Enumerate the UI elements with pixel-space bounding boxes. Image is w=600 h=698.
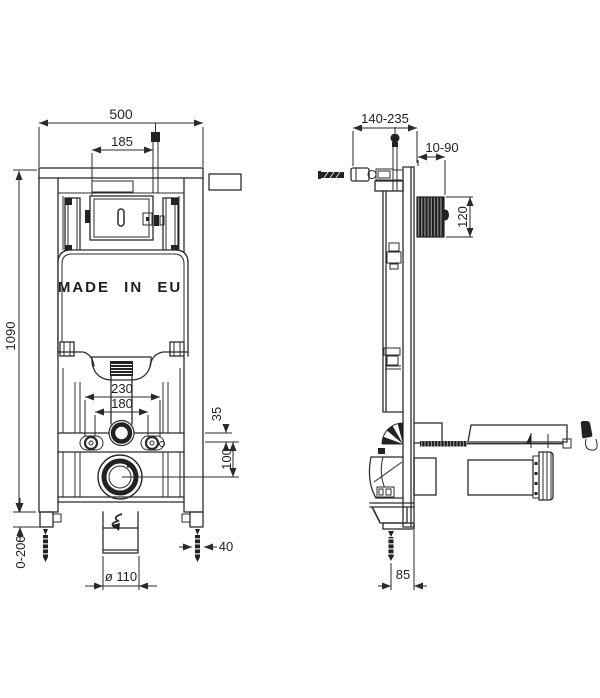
right-fixing-hole	[146, 437, 158, 449]
dim-flush-35-label: 35	[209, 407, 224, 421]
left-rail	[62, 198, 83, 253]
side-rail	[403, 167, 414, 527]
flush-bend-fan	[378, 423, 403, 454]
drain-pipe	[103, 512, 138, 553]
technical-drawing-page: MADE IN EU	[0, 0, 600, 698]
left-fixing-hole	[85, 437, 97, 449]
upper-bracket	[414, 423, 442, 443]
dim-height-1090-label: 1090	[3, 322, 18, 351]
dim-drain-dia-110: ø 110	[85, 556, 157, 590]
drain-elbow	[369, 457, 403, 498]
flush-pipe-outlet	[109, 421, 134, 446]
inspection-window-block	[417, 197, 449, 237]
frame-bottom	[40, 497, 203, 562]
right-clip	[154, 215, 159, 226]
dim-foot-40-label: 40	[219, 539, 233, 554]
front-view: MADE IN EU	[39, 123, 241, 562]
dim-outlet-85-label: 85	[396, 567, 410, 582]
supply-rod-cap	[151, 132, 160, 142]
right-leg-pin	[195, 529, 200, 562]
dim-foot-40: 40	[179, 539, 233, 554]
valve-bracket	[375, 181, 403, 191]
outlet-pipe	[468, 460, 533, 495]
mounting-plate	[468, 425, 567, 442]
side-view	[318, 127, 597, 561]
dim-fixing-230-label: 230	[111, 381, 133, 396]
dim-supply-185-label: 185	[111, 134, 133, 149]
flush-access-box	[85, 196, 164, 240]
dim-depth-140-235: 140-235	[353, 111, 417, 166]
cistern-frame-drawing: MADE IN EU	[0, 0, 600, 698]
fastener-bracket	[581, 421, 597, 450]
side-foot	[370, 503, 414, 561]
side-dimensions: 140-235 10-90 120 85	[353, 111, 473, 590]
dim-outlet-85: 85	[378, 530, 427, 590]
dim-wall-10-90: 10-90	[418, 140, 459, 195]
cone-seal	[533, 452, 553, 500]
actuator-opening	[92, 181, 133, 192]
dim-window-120: 120	[446, 197, 473, 237]
cistern-side	[383, 191, 403, 412]
dim-depth-140-235-label: 140-235	[361, 111, 409, 126]
dim-flush-35: 35	[205, 407, 239, 451]
dim-drain-dia-110-label: ø 110	[105, 569, 137, 584]
wall-bracket	[209, 174, 241, 190]
outlet-sleeve	[414, 458, 436, 495]
dim-window-120-label: 120	[455, 206, 470, 228]
dim-height-1090: 1090	[3, 170, 37, 512]
dim-supply-185: 185	[92, 134, 153, 196]
dim-leg-0-200: 0-200	[13, 498, 45, 569]
cistern-tank: MADE IN EU	[58, 250, 188, 356]
dim-leg-0-200-label: 0-200	[13, 535, 28, 568]
dim-drain-100-label: 100	[219, 448, 234, 470]
water-valve	[318, 168, 402, 181]
left-leg-pin	[43, 529, 48, 562]
frame-top-bar	[39, 168, 203, 178]
dim-fixing-180-label: 180	[111, 396, 133, 411]
left-clip	[85, 210, 90, 223]
made-in-label: MADE IN EU	[58, 279, 182, 296]
dim-wall-10-90-label: 10-90	[425, 140, 458, 155]
dim-width-500-label: 500	[109, 106, 133, 122]
